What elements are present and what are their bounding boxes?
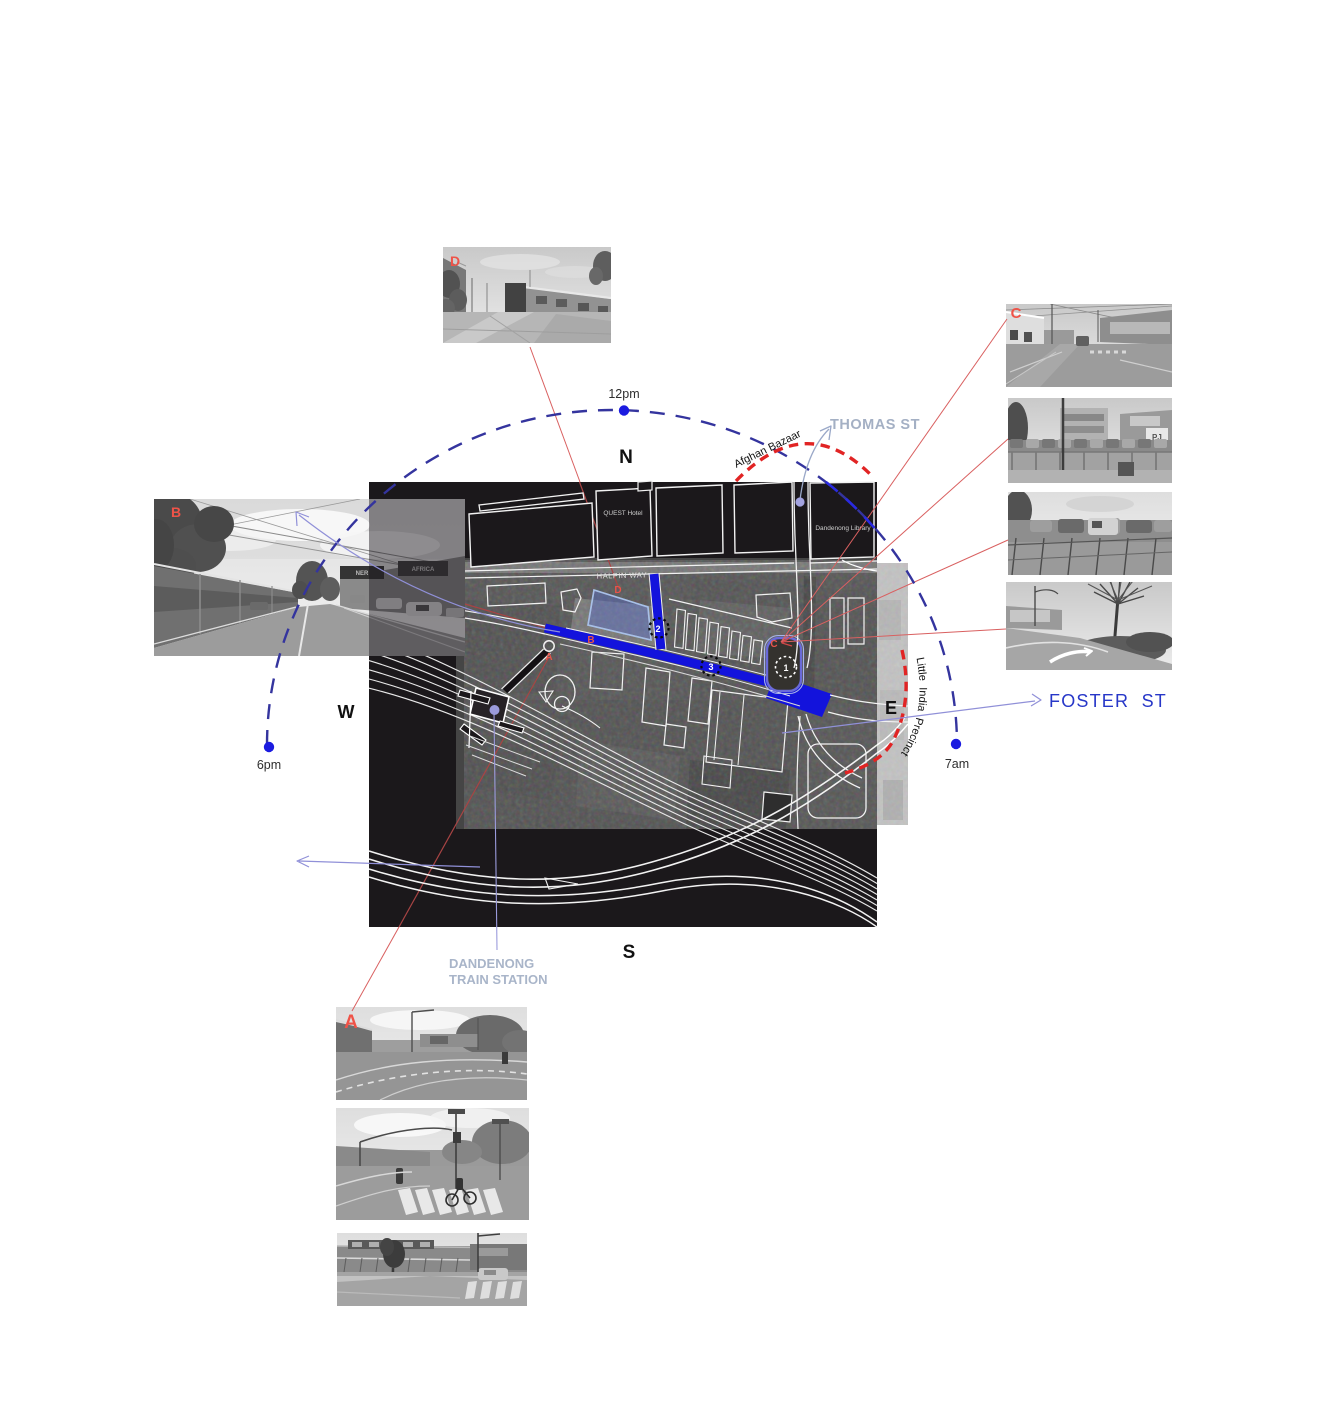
svg-text:DANDENONG: DANDENONG [449,956,534,971]
svg-text:FOSTER ST: FOSTER ST [1049,691,1167,711]
svg-text:C: C [1011,305,1022,322]
svg-text:7am: 7am [945,757,969,771]
svg-text:D: D [614,585,621,596]
svg-text:B: B [587,635,594,646]
svg-text:N: N [619,447,633,468]
svg-text:6pm: 6pm [257,758,281,772]
svg-text:Dandenong Library: Dandenong Library [815,525,871,532]
svg-text:C: C [770,639,777,650]
svg-text:A: A [545,652,552,663]
svg-text:HALPIN WAY: HALPIN WAY [597,570,648,580]
svg-text:3: 3 [708,662,713,672]
svg-text:2: 2 [655,624,660,634]
svg-text:TRAIN STATION: TRAIN STATION [449,972,547,987]
svg-text:D: D [450,253,460,269]
svg-text:S: S [623,942,636,963]
svg-text:E: E [885,698,897,718]
svg-text:1: 1 [783,663,788,673]
svg-text:12pm: 12pm [608,387,639,401]
svg-text:QUEST Hotel: QUEST Hotel [603,510,643,517]
svg-text:NER: NER [356,571,369,577]
svg-text:W: W [338,702,355,722]
svg-text:B: B [171,504,181,520]
svg-text:A: A [344,1012,358,1033]
svg-text:THOMAS ST: THOMAS ST [830,417,920,433]
